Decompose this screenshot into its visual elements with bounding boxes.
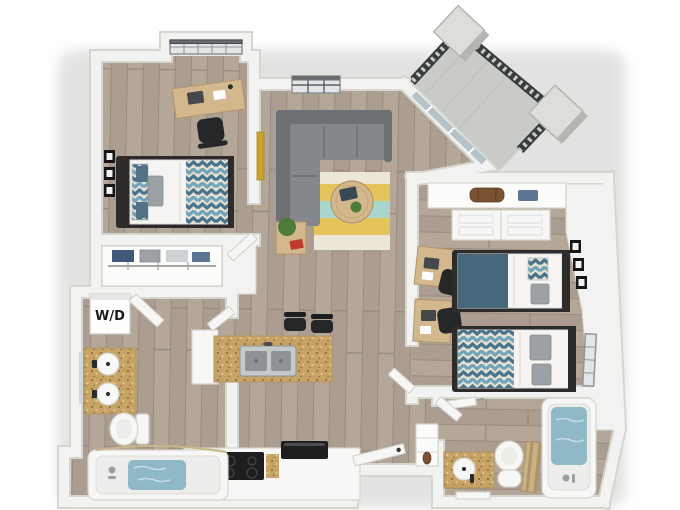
living-room-window	[292, 76, 340, 93]
framed-art	[257, 132, 264, 180]
bedroom-1-window	[170, 40, 242, 54]
floor-plan-svg: W/D	[0, 0, 680, 510]
bathtub	[542, 398, 596, 498]
bar-stool-1	[284, 318, 306, 331]
bedroom-2-window	[583, 334, 597, 387]
microwave	[281, 441, 328, 459]
island-faucet	[264, 342, 272, 346]
coffee-table	[331, 181, 373, 223]
table-plant	[351, 202, 362, 213]
double-sink	[240, 342, 296, 376]
twin-bed	[116, 156, 234, 228]
teal-blanket	[458, 254, 508, 308]
bathtub	[88, 446, 228, 500]
washer-dryer-label: W/D	[95, 309, 125, 324]
hall-closet	[102, 246, 222, 286]
potted-plant	[278, 218, 296, 236]
side-table	[276, 218, 306, 254]
linen-closet	[416, 424, 438, 466]
twin-bed-b	[452, 326, 576, 392]
duffel-bag	[470, 188, 504, 202]
closet-shelf	[428, 183, 566, 208]
folded-clothes	[112, 250, 134, 262]
bath-water	[551, 407, 587, 465]
toilet	[495, 441, 523, 487]
bath-mat	[456, 492, 490, 499]
floor-plan-image: W/D	[0, 0, 680, 510]
chevron-blanket	[458, 330, 514, 388]
folded-blanket	[518, 190, 538, 201]
bath-water	[128, 460, 186, 490]
laptop	[187, 91, 205, 105]
chevron-pillow	[528, 258, 548, 280]
tub-faucet	[109, 467, 116, 474]
toilet	[110, 413, 149, 445]
living-room	[257, 110, 392, 254]
chevron-blanket	[186, 160, 228, 224]
double-vanity	[84, 348, 136, 414]
twin-bed-a	[452, 250, 570, 312]
sliding-closet-doors	[452, 210, 550, 240]
gray-pillow	[148, 176, 163, 206]
bar-stool-2	[311, 320, 333, 333]
wall-art-frames	[104, 150, 115, 197]
tub-faucet	[563, 475, 570, 482]
mirror	[79, 352, 83, 404]
